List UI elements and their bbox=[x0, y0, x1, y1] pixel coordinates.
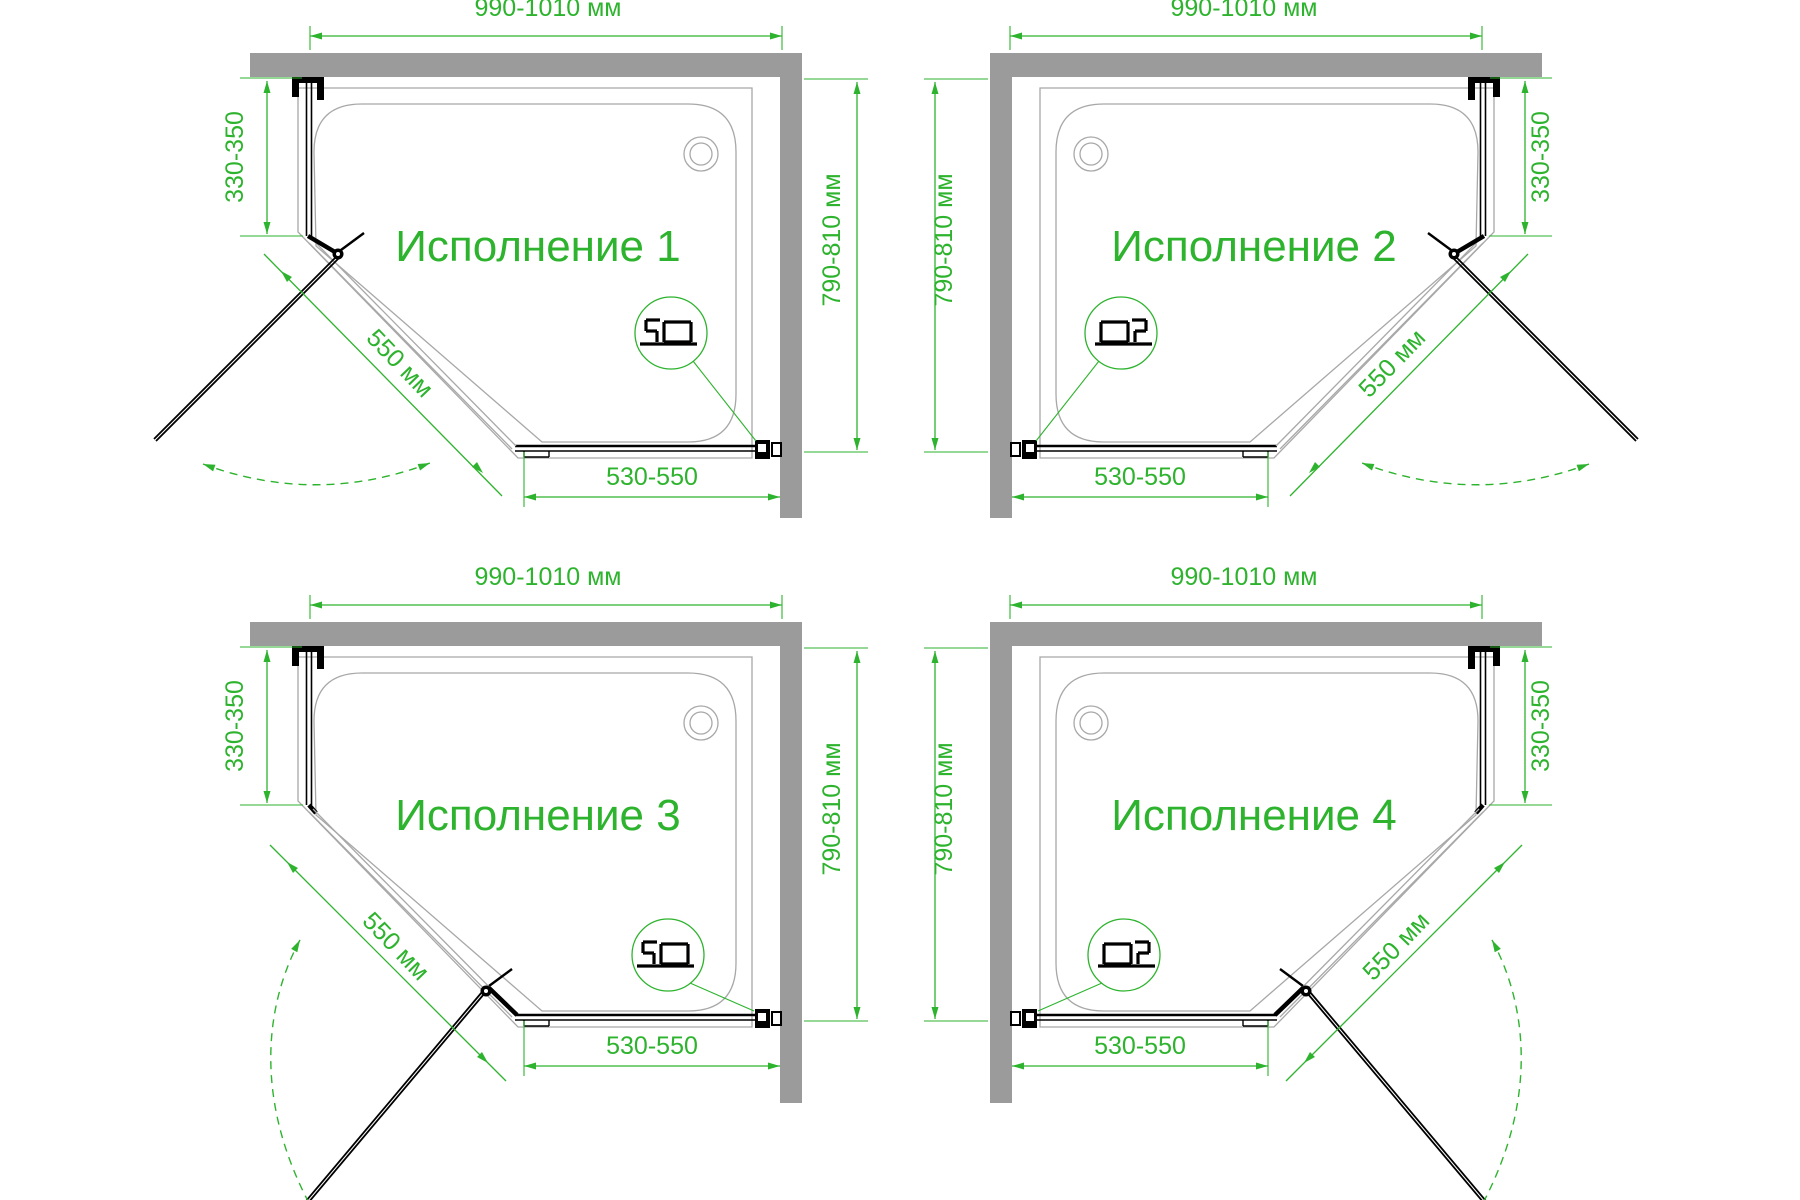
detail-leader-line bbox=[690, 983, 754, 1011]
dim-label-side: 330-350 bbox=[221, 111, 249, 203]
profile-detail-circle bbox=[1036, 297, 1157, 441]
dim-arrowhead bbox=[1256, 1063, 1268, 1070]
detail-circle bbox=[635, 297, 707, 369]
dim-line bbox=[270, 845, 506, 1081]
dim-door: 550 мм bbox=[1286, 845, 1522, 1081]
wall-profile-bracket-corner bbox=[755, 1009, 781, 1028]
wall bbox=[250, 53, 802, 518]
dim-arrowhead bbox=[310, 33, 322, 40]
drain-circle bbox=[1074, 137, 1108, 171]
dim-side-panel: 330-350 bbox=[221, 647, 303, 805]
dim-label-height: 790-810 мм bbox=[930, 742, 958, 875]
dim-arrowhead bbox=[1577, 464, 1589, 471]
dim-label-bottom: 530-550 bbox=[1094, 463, 1186, 491]
dim-arrowhead bbox=[854, 1007, 861, 1019]
profile-section-icon bbox=[1098, 942, 1155, 966]
door-closed-outline bbox=[309, 243, 512, 449]
dim-width: 990-1010 мм bbox=[310, 0, 782, 50]
dim-arrowhead bbox=[418, 463, 430, 470]
profile-section-icon bbox=[637, 942, 694, 966]
dim-arrowhead bbox=[1012, 494, 1024, 501]
dim-arrowhead bbox=[203, 464, 215, 471]
dim-line bbox=[1290, 254, 1528, 496]
hinge-knob-icon bbox=[1452, 252, 1456, 256]
dim-arrowhead bbox=[1470, 602, 1482, 609]
dim-arrowhead bbox=[1522, 222, 1529, 234]
bracket-part bbox=[758, 1013, 766, 1021]
door-closed-outline bbox=[1280, 243, 1483, 449]
door-open-leaf bbox=[285, 992, 482, 1200]
shower-tray-rim bbox=[1040, 657, 1494, 1027]
dim-bottom-panel: 530-550 bbox=[524, 1021, 780, 1076]
dim-arrowhead bbox=[854, 82, 861, 94]
bracket-part bbox=[1493, 652, 1500, 666]
bracket-part bbox=[292, 652, 299, 666]
dim-label-side: 330-350 bbox=[1527, 111, 1555, 203]
dim-arrowhead bbox=[1522, 81, 1529, 93]
bracket-part bbox=[1468, 83, 1475, 100]
drain-icon bbox=[1074, 137, 1108, 171]
hinge-knob-icon bbox=[1304, 989, 1308, 993]
door-swing-arc bbox=[1459, 940, 1521, 1200]
drain-circle bbox=[690, 712, 712, 734]
bracket-part bbox=[1468, 652, 1475, 669]
door-open-leaf bbox=[1453, 258, 1636, 441]
door-handle-icon bbox=[1280, 969, 1303, 986]
dim-label-door: 550 мм bbox=[357, 907, 435, 986]
bracket-part bbox=[1011, 443, 1020, 456]
dim-side-panel: 330-350 bbox=[221, 78, 303, 236]
profile-detail-circle bbox=[635, 297, 756, 441]
dim-label-bottom: 530-550 bbox=[606, 1032, 698, 1060]
dim-label-width: 990-1010 мм bbox=[1171, 563, 1318, 591]
dim-arrowhead bbox=[770, 33, 782, 40]
diagram-ispolnenie-2: 550 мм990-1010 мм790-810 мм330-350530-55… bbox=[924, 0, 1638, 518]
bracket-part bbox=[292, 83, 299, 97]
door-swing-arc bbox=[1362, 463, 1589, 485]
dim-side-panel: 330-350 bbox=[1489, 78, 1555, 236]
diagram-title: Исполнение 4 bbox=[1111, 791, 1396, 840]
dim-arrowhead bbox=[1012, 1063, 1024, 1070]
dim-height: 790-810 мм bbox=[804, 648, 868, 1021]
wall-profile-bracket-corner bbox=[1011, 440, 1037, 459]
dim-side-panel: 330-350 bbox=[1489, 647, 1555, 805]
dim-arrowhead bbox=[932, 82, 939, 94]
diagram-ispolnenie-3: 550 мм990-1010 мм790-810 мм330-350530-55… bbox=[221, 563, 868, 1200]
diagram-ispolnenie-4: 550 мм990-1010 мм790-810 мм330-350530-55… bbox=[924, 563, 1555, 1200]
door-open-leaf bbox=[154, 256, 337, 439]
hinge-knob-icon bbox=[336, 252, 340, 256]
dim-label-bottom: 530-550 bbox=[606, 463, 698, 491]
dim-arrowhead bbox=[1492, 940, 1501, 952]
dim-arrowhead bbox=[1010, 602, 1022, 609]
dim-arrowhead bbox=[932, 438, 939, 450]
wall bbox=[990, 53, 1542, 518]
dim-height: 790-810 мм bbox=[804, 79, 868, 452]
bracket-part bbox=[772, 1012, 781, 1025]
wall-profile-bracket-corner bbox=[1011, 1009, 1037, 1028]
drawing-canvas: 550 мм990-1010 мм790-810 мм330-350530-55… bbox=[0, 0, 1800, 1200]
shower-tray-basin bbox=[1056, 673, 1478, 1011]
dim-width: 990-1010 мм bbox=[1010, 563, 1482, 619]
diagram-title: Исполнение 1 bbox=[395, 222, 680, 271]
dim-arrowhead bbox=[854, 438, 861, 450]
door-swing-arc bbox=[271, 940, 333, 1200]
bracket-part bbox=[758, 444, 766, 452]
dim-arrowhead bbox=[1362, 463, 1374, 470]
shower-tray-basin bbox=[1056, 104, 1478, 442]
shower-tray-rim bbox=[1040, 88, 1494, 458]
door-handle-icon bbox=[341, 233, 364, 250]
dim-arrowhead bbox=[1522, 791, 1529, 803]
bracket-part bbox=[1026, 1013, 1034, 1021]
dim-label-width: 990-1010 мм bbox=[475, 0, 622, 22]
door-open-leaf bbox=[1310, 992, 1507, 1200]
dim-arrowhead bbox=[264, 791, 271, 803]
dim-arrowhead bbox=[932, 651, 939, 663]
dim-arrowhead bbox=[768, 1063, 780, 1070]
dim-arrowhead bbox=[770, 602, 782, 609]
dim-arrowhead bbox=[1010, 33, 1022, 40]
wall bbox=[250, 622, 802, 1103]
dim-label-width: 990-1010 мм bbox=[1171, 0, 1318, 22]
dim-label-door: 550 мм bbox=[1357, 907, 1435, 986]
profile-section-icon bbox=[640, 320, 697, 344]
drain-circle bbox=[1080, 143, 1102, 165]
detail-circle bbox=[1085, 297, 1157, 369]
door-handle-icon bbox=[1428, 233, 1451, 250]
dim-arrowhead bbox=[264, 222, 271, 234]
drain-icon bbox=[1074, 706, 1108, 740]
hinge-bracket bbox=[1457, 236, 1484, 252]
dim-bottom-panel: 530-550 bbox=[524, 452, 780, 507]
hinge-bracket bbox=[308, 236, 335, 252]
drain-circle bbox=[1080, 712, 1102, 734]
dim-door: 550 мм bbox=[1290, 254, 1528, 496]
door-open-leaf bbox=[156, 258, 339, 441]
dim-arrowhead bbox=[524, 1063, 536, 1070]
detail-circle bbox=[1088, 919, 1160, 991]
wall bbox=[990, 622, 1542, 1103]
diagram-title: Исполнение 2 bbox=[1111, 222, 1396, 271]
diagram-title: Исполнение 3 bbox=[395, 791, 680, 840]
dim-arrowhead bbox=[854, 651, 861, 663]
drain-circle bbox=[684, 137, 718, 171]
drain-circle bbox=[1074, 706, 1108, 740]
bracket-part bbox=[317, 652, 324, 669]
shower-tray-rim bbox=[298, 88, 752, 458]
wall-profile-bracket-corner bbox=[755, 440, 781, 459]
drain-icon bbox=[684, 706, 718, 740]
dim-bottom-panel: 530-550 bbox=[1012, 1021, 1268, 1076]
bracket-part bbox=[1011, 1012, 1020, 1025]
dim-door: 550 мм bbox=[270, 845, 506, 1081]
dim-arrowhead bbox=[310, 602, 322, 609]
detail-leader-line bbox=[1038, 983, 1102, 1011]
technical-drawing-page: 550 мм990-1010 мм790-810 мм330-350530-55… bbox=[0, 0, 1800, 1200]
bracket-part bbox=[772, 443, 781, 456]
dim-line bbox=[264, 254, 502, 496]
dim-arrowhead bbox=[1522, 650, 1529, 662]
door-handle-icon bbox=[489, 969, 512, 986]
shower-tray-basin bbox=[314, 104, 736, 442]
dim-label-width: 990-1010 мм bbox=[475, 563, 622, 591]
shower-tray-basin bbox=[314, 673, 736, 1011]
diagram-ispolnenie-1: 550 мм990-1010 мм790-810 мм330-350530-55… bbox=[154, 0, 868, 518]
dim-arrowhead bbox=[932, 1007, 939, 1019]
drain-circle bbox=[690, 143, 712, 165]
drain-circle bbox=[684, 706, 718, 740]
dim-label-side: 330-350 bbox=[221, 680, 249, 772]
bracket-part bbox=[1493, 83, 1500, 97]
dim-arrowhead bbox=[264, 650, 271, 662]
profile-section-icon bbox=[1095, 320, 1152, 344]
drain-icon bbox=[684, 137, 718, 171]
shower-tray-rim bbox=[298, 657, 752, 1027]
dim-arrowhead bbox=[264, 81, 271, 93]
dim-line bbox=[1286, 845, 1522, 1081]
detail-circle bbox=[632, 919, 704, 991]
door-swing-arc bbox=[203, 463, 430, 485]
dim-label-height: 790-810 мм bbox=[930, 173, 958, 306]
dim-label-height: 790-810 мм bbox=[818, 173, 846, 306]
dim-arrowhead bbox=[1256, 494, 1268, 501]
dim-label-bottom: 530-550 bbox=[1094, 1032, 1186, 1060]
dim-label-side: 330-350 bbox=[1527, 680, 1555, 772]
dim-arrowhead bbox=[524, 494, 536, 501]
dim-width: 990-1010 мм bbox=[310, 563, 782, 619]
dim-height: 790-810 мм bbox=[924, 79, 988, 452]
dim-width: 990-1010 мм bbox=[1010, 0, 1482, 50]
dim-label-height: 790-810 мм bbox=[818, 742, 846, 875]
dim-door: 550 мм bbox=[264, 254, 502, 496]
hinge-knob-icon bbox=[484, 989, 488, 993]
door-open-leaf bbox=[1455, 256, 1638, 439]
dim-arrowhead bbox=[291, 940, 300, 952]
bracket-part bbox=[1026, 444, 1034, 452]
dim-arrowhead bbox=[768, 494, 780, 501]
dim-bottom-panel: 530-550 bbox=[1012, 452, 1268, 507]
bracket-part bbox=[317, 83, 324, 100]
dim-arrowhead bbox=[1470, 33, 1482, 40]
dim-height: 790-810 мм bbox=[924, 648, 988, 1021]
